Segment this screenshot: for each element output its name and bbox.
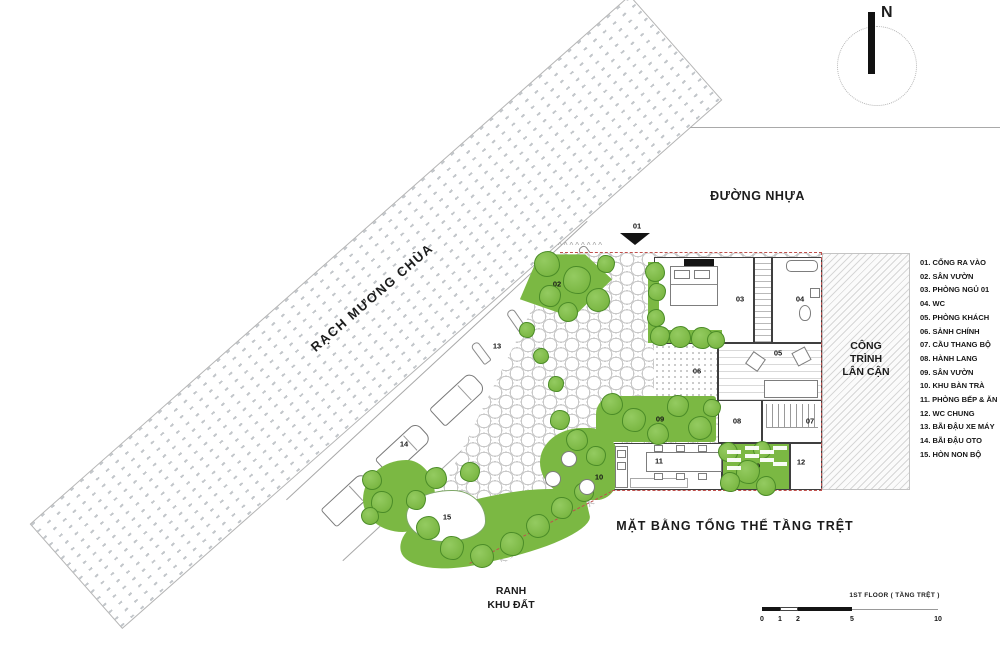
scale-tick-10: 10: [934, 616, 942, 623]
deck-plank: [727, 466, 741, 470]
site-plan-canvas: CÔNG TRÌNH LÂN CẬN ^^^^^^^^ ĐƯỜNG NHỰA R…: [0, 0, 1000, 670]
plan-marker-01: 01: [633, 222, 641, 231]
tree-icon: [669, 326, 691, 348]
entrance-arrow-icon: [620, 233, 650, 245]
scale-bar: 1ST FLOOR ( TẦNG TRỆT ) 012510: [762, 592, 957, 632]
tree-icon: [533, 348, 549, 364]
toilet: [799, 305, 811, 321]
scale-tick-1: 1: [778, 616, 782, 623]
boundary-label: RANH KHU ĐẤT: [455, 585, 567, 612]
room-wc-12: [790, 443, 822, 490]
tree-icon: [406, 490, 426, 510]
legend-item: 02. SÂN VƯỜN: [920, 270, 1000, 284]
deck-plank: [773, 462, 787, 466]
legend-item: 06. SẢNH CHÍNH: [920, 325, 1000, 339]
deck-plank: [745, 446, 759, 450]
tree-icon: [440, 536, 464, 560]
legend-item: 13. BÃI ĐẬU XE MÁY: [920, 420, 1000, 434]
scale-seg-1-2: [780, 607, 798, 611]
fence-marks: ^^^^^^^^: [558, 241, 604, 250]
legend-item: 04. WC: [920, 297, 1000, 311]
tree-icon: [362, 470, 382, 490]
legend-item: 03. PHÒNG NGỦ 01: [920, 283, 1000, 297]
bed-pillow: [674, 270, 690, 279]
plan-marker-11: 11: [655, 457, 663, 466]
kitchen-stove: [617, 462, 626, 470]
tree-icon: [519, 322, 535, 338]
tree-icon: [551, 497, 573, 519]
adjacent-building-label: CÔNG TRÌNH LÂN CẬN: [822, 340, 910, 379]
tree-icon: [645, 262, 665, 282]
tree-icon: [622, 408, 646, 432]
motorbike-icon: [470, 341, 492, 366]
bed-pillow: [694, 270, 710, 279]
legend-item: 05. PHÒNG KHÁCH: [920, 311, 1000, 325]
tea-table-icon: [579, 479, 595, 495]
tree-icon: [688, 416, 712, 440]
sink: [810, 288, 820, 298]
dining-chair: [654, 473, 663, 480]
legend-item: 01. CỔNG RA VÀO: [920, 256, 1000, 270]
legend-item: 14. BÃI ĐẬU OTO: [920, 434, 1000, 448]
scale-tick-0: 0: [760, 616, 764, 623]
tv-console: [684, 259, 714, 266]
tree-icon: [460, 462, 480, 482]
north-arrow: N: [837, 26, 917, 106]
road-label: ĐƯỜNG NHỰA: [690, 189, 825, 203]
tree-icon: [707, 331, 725, 349]
legend-item: 15. HÒN NON BỘ: [920, 448, 1000, 462]
tree-icon: [534, 251, 560, 277]
bathtub: [786, 260, 818, 272]
plan-marker-07: 07: [806, 417, 814, 426]
tree-icon: [647, 423, 669, 445]
tree-icon: [566, 429, 588, 451]
plan-marker-04: 04: [796, 295, 804, 304]
deck-plank: [727, 450, 741, 454]
compass-needle-icon: [868, 12, 875, 74]
plan-marker-08: 08: [733, 417, 741, 426]
adjacent-line-2: TRÌNH: [822, 353, 910, 366]
tree-icon: [500, 532, 524, 556]
scale-tick-2: 2: [796, 616, 800, 623]
deck-plank: [760, 458, 774, 462]
tree-icon: [650, 326, 670, 346]
deck-plank: [760, 450, 774, 454]
boundary-line-1: RANH: [455, 585, 567, 599]
dining-chair: [698, 473, 707, 480]
dining-chair: [676, 473, 685, 480]
plan-marker-06: 06: [693, 367, 701, 376]
legend-item: 09. SÂN VƯỜN: [920, 366, 1000, 380]
site-boundary-north: [560, 252, 822, 253]
dining-chair: [698, 445, 707, 452]
road-edge-line: [690, 127, 1000, 128]
legend-item: 07. CẦU THANG BỘ: [920, 338, 1000, 352]
boundary-line-2: KHU ĐẤT: [455, 599, 567, 613]
tree-icon: [756, 476, 776, 496]
plan-marker-15: 15: [443, 513, 451, 522]
tree-icon: [563, 266, 591, 294]
tree-icon: [647, 309, 665, 327]
tree-icon: [597, 255, 615, 273]
adjacent-line-1: CÔNG: [822, 340, 910, 353]
room-hall-06: [654, 343, 718, 401]
tree-icon: [648, 283, 666, 301]
dining-chair: [676, 445, 685, 452]
plan-marker-12: 12: [797, 458, 805, 467]
plan-marker-03: 03: [736, 295, 744, 304]
plan-marker-05: 05: [774, 349, 782, 358]
plan-marker-14: 14: [400, 440, 408, 449]
closet-corridor: [754, 257, 772, 343]
kitchen-sink: [617, 450, 626, 458]
deck-plank: [727, 458, 741, 462]
plan-marker-10: 10: [595, 473, 603, 482]
legend-item: 12. WC CHUNG: [920, 407, 1000, 421]
tea-table-icon: [545, 471, 561, 487]
dining-chair: [654, 445, 663, 452]
scale-seg-2-5: [798, 607, 852, 611]
tree-icon: [601, 393, 623, 415]
tree-icon: [416, 516, 440, 540]
deck-plank: [745, 454, 759, 458]
deck-plank: [773, 446, 787, 450]
legend-item: 08. HÀNH LANG: [920, 352, 1000, 366]
adjacent-line-3: LÂN CẬN: [822, 366, 910, 379]
tree-icon: [548, 376, 564, 392]
tree-icon: [586, 288, 610, 312]
tree-icon: [425, 467, 447, 489]
tree-icon: [470, 544, 494, 568]
tree-icon: [720, 472, 740, 492]
scale-tick-5: 5: [850, 616, 854, 623]
site-boundary-south: [612, 490, 822, 491]
compass-n-label: N: [881, 4, 893, 22]
plan-title: MẶT BẰNG TỔNG THỂ TẦNG TRỆT: [600, 519, 870, 533]
tree-icon: [558, 302, 578, 322]
tree-icon: [526, 514, 550, 538]
compass-circle-icon: [837, 26, 917, 106]
plan-marker-13: 13: [493, 342, 501, 351]
sofa: [764, 380, 818, 398]
legend-item: 10. KHU BÀN TRÀ: [920, 379, 1000, 393]
bed-blanket-line: [671, 284, 717, 285]
scale-bar-label: 1ST FLOOR ( TẦNG TRỆT ): [837, 592, 952, 599]
tree-icon: [667, 395, 689, 417]
legend-item: 11. PHÒNG BẾP & ĂN: [920, 393, 1000, 407]
tree-icon: [550, 410, 570, 430]
scale-seg-5-10: [852, 609, 938, 610]
tree-icon: [703, 399, 721, 417]
tea-table-icon: [561, 451, 577, 467]
legend: 01. CỔNG RA VÀO02. SÂN VƯỜN03. PHÒNG NGỦ…: [920, 256, 1000, 462]
tree-icon: [539, 285, 561, 307]
tree-icon: [361, 507, 379, 525]
tree-icon: [586, 446, 606, 466]
scale-seg-0-1: [762, 607, 780, 611]
